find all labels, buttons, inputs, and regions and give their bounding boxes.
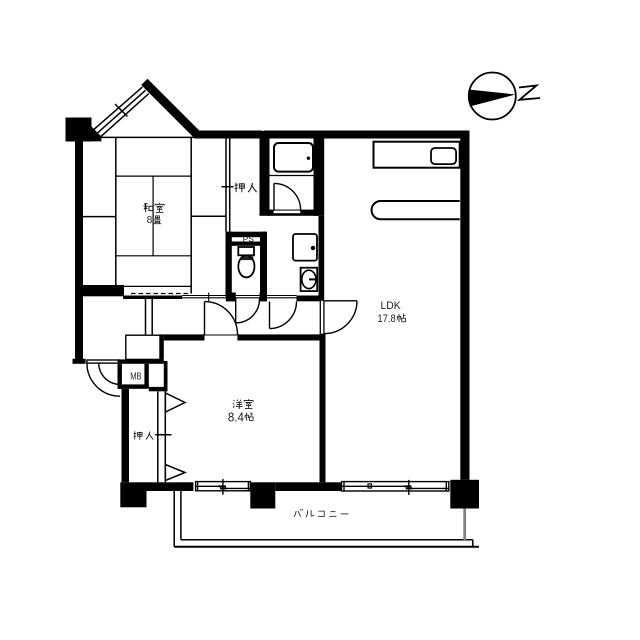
svg-text:17.8: 17.8 <box>377 313 395 325</box>
svg-text:PS: PS <box>243 237 255 244</box>
svg-text:LDK: LDK <box>381 300 402 312</box>
svg-text:MB: MB <box>130 372 141 383</box>
svg-text:8: 8 <box>147 215 153 226</box>
svg-text:8.4: 8.4 <box>228 410 244 424</box>
